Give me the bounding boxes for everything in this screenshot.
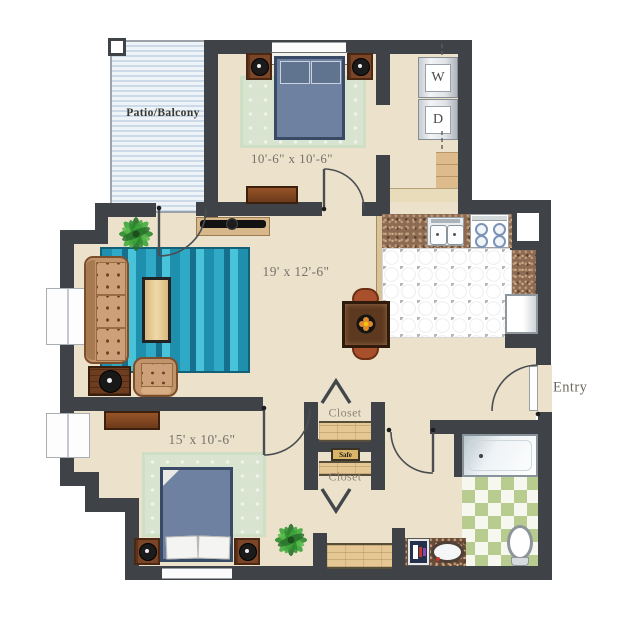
wall-below-fridge xyxy=(505,334,551,348)
sofa-cushion xyxy=(96,328,126,361)
stove-burner xyxy=(493,235,506,248)
bathtub xyxy=(462,434,538,477)
stove-control-strip xyxy=(472,216,507,221)
tv-mount xyxy=(226,218,238,230)
sofa xyxy=(84,256,129,364)
dryer-letter: D xyxy=(425,106,451,134)
sink-drain-right xyxy=(453,233,456,236)
table-centerpiece-flower xyxy=(355,313,377,335)
armchair-cushion xyxy=(141,363,173,387)
side-table-lamp xyxy=(99,370,122,393)
wall-bedroom1-right-lower xyxy=(376,155,390,202)
patio-label: Patio/Balcony xyxy=(126,107,200,119)
safe-label: Safe xyxy=(339,451,352,459)
living-dimensions: 19' x 12'-6" xyxy=(263,264,330,280)
laundry-wood-floor xyxy=(436,152,458,188)
sink-faucet xyxy=(431,219,460,223)
wall-bathroom-top xyxy=(430,420,552,434)
bed2-fold xyxy=(163,470,179,486)
palm-plant-bedroom2 xyxy=(272,521,310,559)
dresser-bedroom1 xyxy=(246,186,298,204)
armchair-front xyxy=(141,387,171,394)
stove-burner xyxy=(475,235,488,248)
palm-plant-living xyxy=(116,214,156,254)
armchair xyxy=(133,357,178,397)
sofa-back xyxy=(86,260,95,360)
toilet-base xyxy=(511,557,529,566)
bathroom-cabinet xyxy=(408,539,429,565)
washer-letter: W xyxy=(425,64,451,92)
closet-top-shelf xyxy=(319,421,371,442)
lamp-bed2-left xyxy=(139,543,157,561)
wall-patio-bedroom1 xyxy=(204,40,218,218)
wall-laundry-right xyxy=(458,40,472,214)
coffee-table xyxy=(142,277,171,343)
bedroom2-dimensions: 15' x 10'-6" xyxy=(169,432,236,448)
sofa-cushion xyxy=(96,295,126,328)
bed2-pillow-right xyxy=(198,535,231,559)
kitchen-pantry xyxy=(517,213,539,241)
window-left-lower xyxy=(46,413,90,458)
safe-plaque: Safe xyxy=(331,448,360,461)
kitchen-tile-floor xyxy=(382,248,512,338)
wall-bedroom2-top xyxy=(60,397,263,411)
wall-bedroom1-bottom-left xyxy=(196,202,322,216)
lamp-bed2-right xyxy=(239,543,257,561)
entry-threshold xyxy=(536,365,552,412)
patio-deck xyxy=(110,40,216,213)
bedroom1-dimensions: 10'-6" x 10'-6" xyxy=(251,151,333,167)
wall-right-lower xyxy=(538,412,552,580)
laundry-threshold xyxy=(390,188,458,202)
closet-bottom-label: Closet xyxy=(328,470,361,485)
patio-corner-post xyxy=(108,38,126,56)
hall-closet-shelf xyxy=(327,543,392,569)
kitchen-counter-right xyxy=(512,250,536,294)
tub-drain xyxy=(479,454,483,458)
sofa-cushion xyxy=(96,262,126,295)
lamp-bed1-left xyxy=(251,58,269,76)
wall-bedroom1-right-upper xyxy=(376,54,390,105)
floor-plan: Patio/Balcony 10'-6" x 10 xyxy=(0,0,625,625)
dryer-unit: D xyxy=(418,99,458,140)
kitchen-sink xyxy=(427,217,464,246)
bed1-pillow-right xyxy=(311,61,341,84)
stove xyxy=(470,214,509,248)
sink-drain-left xyxy=(436,233,439,236)
wall-bottom-closet-left xyxy=(313,533,327,580)
vanity-faucet xyxy=(436,557,440,561)
closet-top-label: Closet xyxy=(328,406,361,421)
toilet xyxy=(507,525,533,560)
bed2-pillow-left xyxy=(166,535,199,559)
wall-hall-bathroom xyxy=(392,528,405,580)
window-bedroom2 xyxy=(162,568,232,579)
entry-door-leaf xyxy=(529,366,538,411)
refrigerator xyxy=(505,294,538,334)
dresser-bedroom2 xyxy=(104,411,160,430)
washer-unit: W xyxy=(418,57,458,98)
bed1-pillow-left xyxy=(280,61,310,84)
entry-label: Entry xyxy=(553,380,587,397)
lamp-bed1-right xyxy=(352,58,370,76)
